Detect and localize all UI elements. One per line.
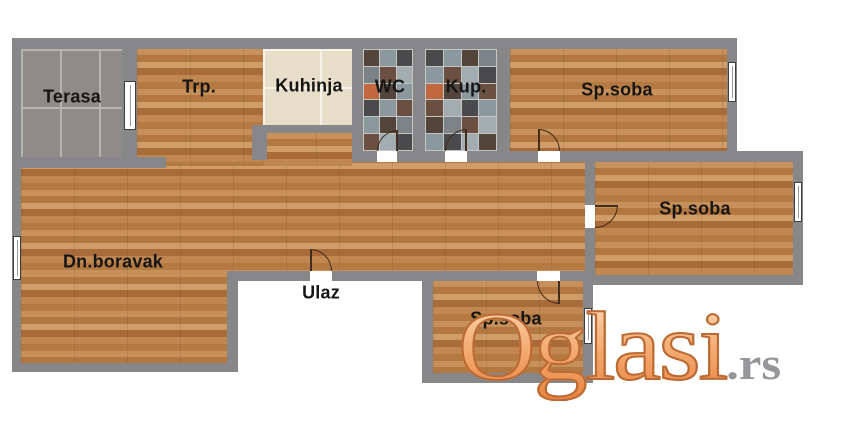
wall-bedroom-middle-bottom (585, 275, 803, 285)
oglasi-watermark: Oglasi.rs (458, 299, 781, 423)
room-label-sp-soba-middle: Sp.soba (659, 199, 730, 220)
wall-bedroom-bottom-left (422, 281, 433, 383)
floor-living-room (21, 271, 227, 363)
wall-mid-band-2 (397, 151, 445, 162)
wall-wc-bathroom-divider (413, 49, 425, 162)
room-label-dnevni-boravak: Dn.boravak (63, 252, 163, 273)
door-bathroom-leaf (465, 129, 467, 151)
door-bedroom-top-gap (538, 151, 560, 162)
window-terrace-door (124, 81, 136, 130)
door-bedroom-top-leaf (538, 129, 540, 151)
door-wc-leaf (396, 130, 398, 151)
wall-hallway-bottom-1 (227, 271, 310, 281)
door-bathroom-gap (445, 151, 467, 162)
wall-kitchen-bottom (252, 125, 360, 133)
floor-plan-canvas: Terasa Trp. Kuhinja WC Kup. Sp.soba Sp.s… (0, 0, 854, 430)
door-bedroom-middle-gap (585, 205, 595, 228)
door-entrance-leaf (310, 249, 312, 271)
watermark-brand: Oglasi (458, 293, 726, 401)
wall-mid-band-3 (467, 151, 538, 162)
floor-dining (137, 49, 263, 166)
room-label-sp-soba-top: Sp.soba (581, 80, 652, 101)
wall-mid-band-4 (560, 151, 803, 162)
wall-living-bottom (12, 363, 238, 372)
room-label-kuhinja: Kuhinja (275, 76, 342, 97)
door-entrance-gap (310, 271, 332, 281)
window-bedroom-top (728, 62, 736, 102)
wall-living-right (227, 271, 238, 372)
wall-hallway-bottom-3 (560, 271, 593, 281)
wall-top (12, 38, 737, 49)
door-bedroom-middle-leaf (595, 205, 618, 207)
wall-mid-band-1 (352, 151, 377, 162)
door-bedroom-bottom-gap (537, 271, 560, 281)
wall-bathroom-right (497, 49, 510, 162)
door-wc-gap (377, 151, 397, 162)
wall-left (12, 38, 21, 372)
wall-wc-left (352, 49, 363, 162)
room-label-kupatilo: Kup. (446, 77, 487, 98)
wall-bedroom-middle-left-a (585, 151, 595, 205)
window-bedroom-middle (794, 182, 802, 222)
room-label-wc: WC (375, 77, 405, 98)
floor-below-kitchen (263, 133, 352, 166)
room-label-trpezarija: Trp. (182, 77, 216, 98)
room-label-ulaz: Ulaz (302, 283, 340, 304)
wall-terrace-bottom (12, 157, 166, 168)
watermark-tld: .rs (726, 338, 781, 389)
wall-hallway-bottom-2 (332, 271, 537, 281)
window-living-room (13, 236, 21, 280)
room-label-terasa: Terasa (43, 87, 101, 108)
